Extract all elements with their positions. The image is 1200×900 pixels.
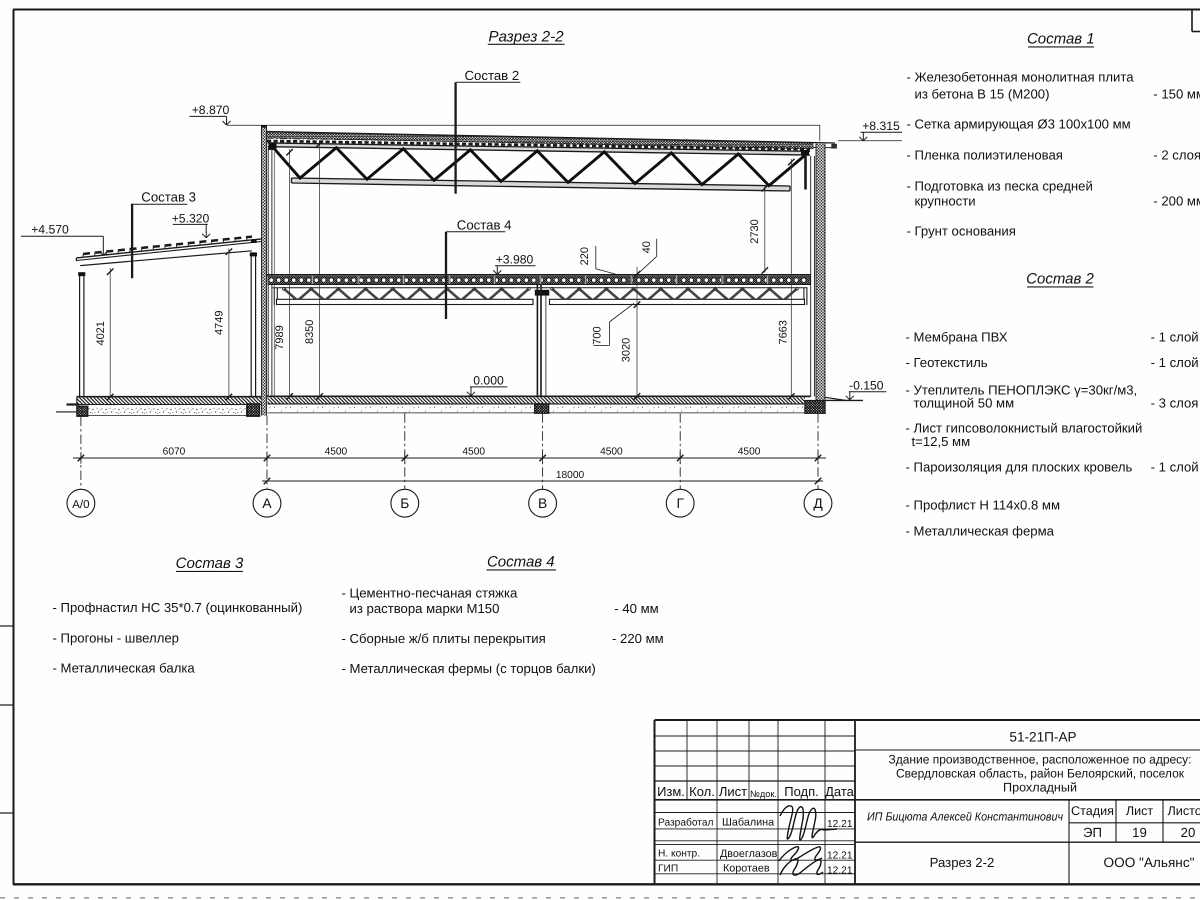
- svg-text:толщиной 50 мм: толщиной 50 мм: [914, 395, 1015, 410]
- svg-text:Б: Б: [400, 496, 409, 511]
- svg-text:12.21: 12.21: [827, 851, 853, 862]
- svg-text:4749: 4749: [213, 310, 225, 334]
- svg-text:Лист: Лист: [719, 784, 747, 799]
- svg-text:Н. контр.: Н. контр.: [658, 849, 700, 860]
- svg-text:- 1 слой: - 1 слой: [1151, 355, 1199, 370]
- svg-text:4500: 4500: [738, 447, 761, 458]
- svg-text:Состав 1: Состав 1: [1027, 31, 1095, 48]
- svg-text:Свердловская область, район Бе: Свердловская область, район Белоярский, …: [896, 766, 1185, 780]
- svg-text:40: 40: [641, 241, 653, 253]
- svg-text:Д: Д: [813, 496, 823, 511]
- svg-text:18000: 18000: [556, 470, 585, 481]
- svg-text:- Грунт основания: - Грунт основания: [907, 224, 1016, 239]
- svg-text:из раствора марки М150: из раствора марки М150: [350, 601, 500, 616]
- svg-text:12.21: 12.21: [827, 866, 853, 877]
- svg-text:8350: 8350: [304, 320, 316, 344]
- svg-text:А/0: А/0: [72, 499, 89, 511]
- svg-text:7663: 7663: [778, 320, 790, 344]
- svg-text:2730: 2730: [749, 219, 761, 243]
- svg-text:Состав 4: Состав 4: [457, 217, 512, 232]
- svg-text:Разрез 2-2: Разрез 2-2: [930, 855, 995, 870]
- svg-text:ГИП: ГИП: [658, 863, 678, 874]
- svg-text:Состав 3: Состав 3: [176, 555, 244, 572]
- svg-text:крупности: крупности: [915, 194, 976, 209]
- svg-text:- Пленка полиэтиленовая: - Пленка полиэтиленовая: [907, 147, 1063, 162]
- svg-text:- Профнастил НС 35*0.7 (оцинко: - Профнастил НС 35*0.7 (оцинкованный): [53, 600, 303, 615]
- svg-text:Коротаев: Коротаев: [723, 863, 770, 875]
- svg-text:6070: 6070: [163, 447, 186, 458]
- svg-text:- 200 мм: - 200 мм: [1153, 194, 1200, 209]
- svg-text:В: В: [538, 496, 547, 511]
- svg-text:4500: 4500: [325, 447, 348, 458]
- svg-text:- Подготовка из песка средней: - Подготовка из песка средней: [907, 178, 1093, 193]
- svg-text:ИП Бицюта Алексей Константинов: ИП Бицюта Алексей Константинович: [867, 809, 1063, 823]
- svg-text:- Профлист Н 114х0.8 мм: - Профлист Н 114х0.8 мм: [906, 498, 1061, 513]
- svg-text:Стадия: Стадия: [1071, 804, 1114, 818]
- svg-text:51-21П-АР: 51-21П-АР: [1009, 730, 1076, 745]
- svg-text:Состав 4: Состав 4: [487, 554, 555, 571]
- svg-text:Листов: Листов: [1168, 804, 1200, 818]
- svg-text:Лист: Лист: [1126, 804, 1154, 818]
- svg-text:700: 700: [591, 326, 603, 344]
- svg-text:-0.150: -0.150: [849, 379, 884, 393]
- svg-text:+3.980: +3.980: [496, 253, 534, 267]
- svg-text:- Мембрана ПВХ: - Мембрана ПВХ: [906, 329, 1008, 344]
- svg-text:12.21: 12.21: [827, 819, 853, 830]
- svg-text:4021: 4021: [95, 321, 107, 345]
- svg-text:- Сборные ж/б плиты перекрытия: - Сборные ж/б плиты перекрытия: [342, 631, 546, 646]
- svg-text:Дата: Дата: [825, 784, 855, 799]
- svg-text:- Металлическая балка: - Металлическая балка: [53, 661, 196, 676]
- svg-text:Изм.: Изм.: [657, 784, 685, 799]
- svg-text:+8.315: +8.315: [862, 119, 900, 133]
- svg-text:Разрез 2-2: Разрез 2-2: [488, 29, 564, 46]
- svg-text:- 40 мм: - 40 мм: [614, 601, 658, 616]
- svg-text:3020: 3020: [621, 338, 633, 362]
- svg-text:Разработал: Разработал: [658, 817, 714, 828]
- svg-text:А: А: [262, 496, 272, 511]
- svg-text:Прохладный: Прохладный: [1003, 780, 1077, 794]
- svg-text:Подп.: Подп.: [784, 784, 819, 799]
- svg-text:- Пароизоляция для плоских кро: - Пароизоляция для плоских кровель: [906, 460, 1133, 475]
- svg-text:Шабалина: Шабалина: [722, 816, 774, 828]
- svg-text:Г: Г: [676, 496, 684, 511]
- svg-text:Здание производственное, распо: Здание производственное, расположенное п…: [889, 752, 1192, 766]
- svg-text:- 2 слоя: - 2 слоя: [1153, 147, 1200, 162]
- svg-text:- Геотекстиль: - Геотекстиль: [906, 355, 988, 370]
- svg-text:- 1 слой: - 1 слой: [1151, 329, 1199, 344]
- svg-text:- Металлическая ферма: - Металлическая ферма: [906, 523, 1055, 538]
- svg-text:- 220 мм: - 220 мм: [612, 631, 664, 646]
- svg-text:- 3 слоя: - 3 слоя: [1151, 395, 1199, 410]
- svg-text:Кол.: Кол.: [689, 784, 715, 799]
- svg-text:- Сетка армирующая Ø3 100х100: - Сетка армирующая Ø3 100х100 мм: [907, 117, 1131, 132]
- svg-text:4500: 4500: [600, 447, 623, 458]
- svg-text:№док.: №док.: [750, 789, 777, 799]
- svg-text:4500: 4500: [462, 447, 485, 458]
- svg-text:Состав 2: Состав 2: [465, 68, 520, 83]
- svg-text:- Железобетонная монолитная п: - Железобетонная монолитная плита: [907, 69, 1135, 84]
- svg-text:Состав 3: Состав 3: [141, 190, 196, 205]
- svg-text:- Цементно-песчаная стяжка: - Цементно-песчаная стяжка: [342, 586, 518, 601]
- svg-text:- Металлическая фермы (с торцо: - Металлическая фермы (с торцов балки): [342, 661, 596, 676]
- svg-text:ООО "Альянс": ООО "Альянс": [1104, 855, 1195, 870]
- svg-text:Двоеглазов: Двоеглазов: [720, 848, 778, 860]
- svg-text:Состав 2: Состав 2: [1026, 270, 1094, 287]
- svg-text:- 150 мм: - 150 мм: [1153, 86, 1200, 101]
- svg-text:из бетона В 15 (М200): из бетона В 15 (М200): [915, 86, 1050, 101]
- svg-text:ЭП: ЭП: [1083, 825, 1102, 840]
- svg-text:t=12,5 мм: t=12,5 мм: [912, 434, 971, 449]
- svg-text:+4.570: +4.570: [31, 223, 69, 237]
- svg-text:- Прогоны - швеллер: - Прогоны - швеллер: [53, 630, 179, 645]
- svg-text:20: 20: [1181, 825, 1196, 840]
- svg-text:- 1 слой: - 1 слой: [1151, 460, 1199, 475]
- svg-text:220: 220: [579, 247, 591, 265]
- svg-text:+8.870: +8.870: [192, 103, 230, 117]
- svg-text:7989: 7989: [274, 325, 286, 349]
- svg-text:+5.320: +5.320: [172, 211, 210, 225]
- svg-text:0.000: 0.000: [473, 374, 504, 388]
- svg-text:19: 19: [1132, 825, 1147, 840]
